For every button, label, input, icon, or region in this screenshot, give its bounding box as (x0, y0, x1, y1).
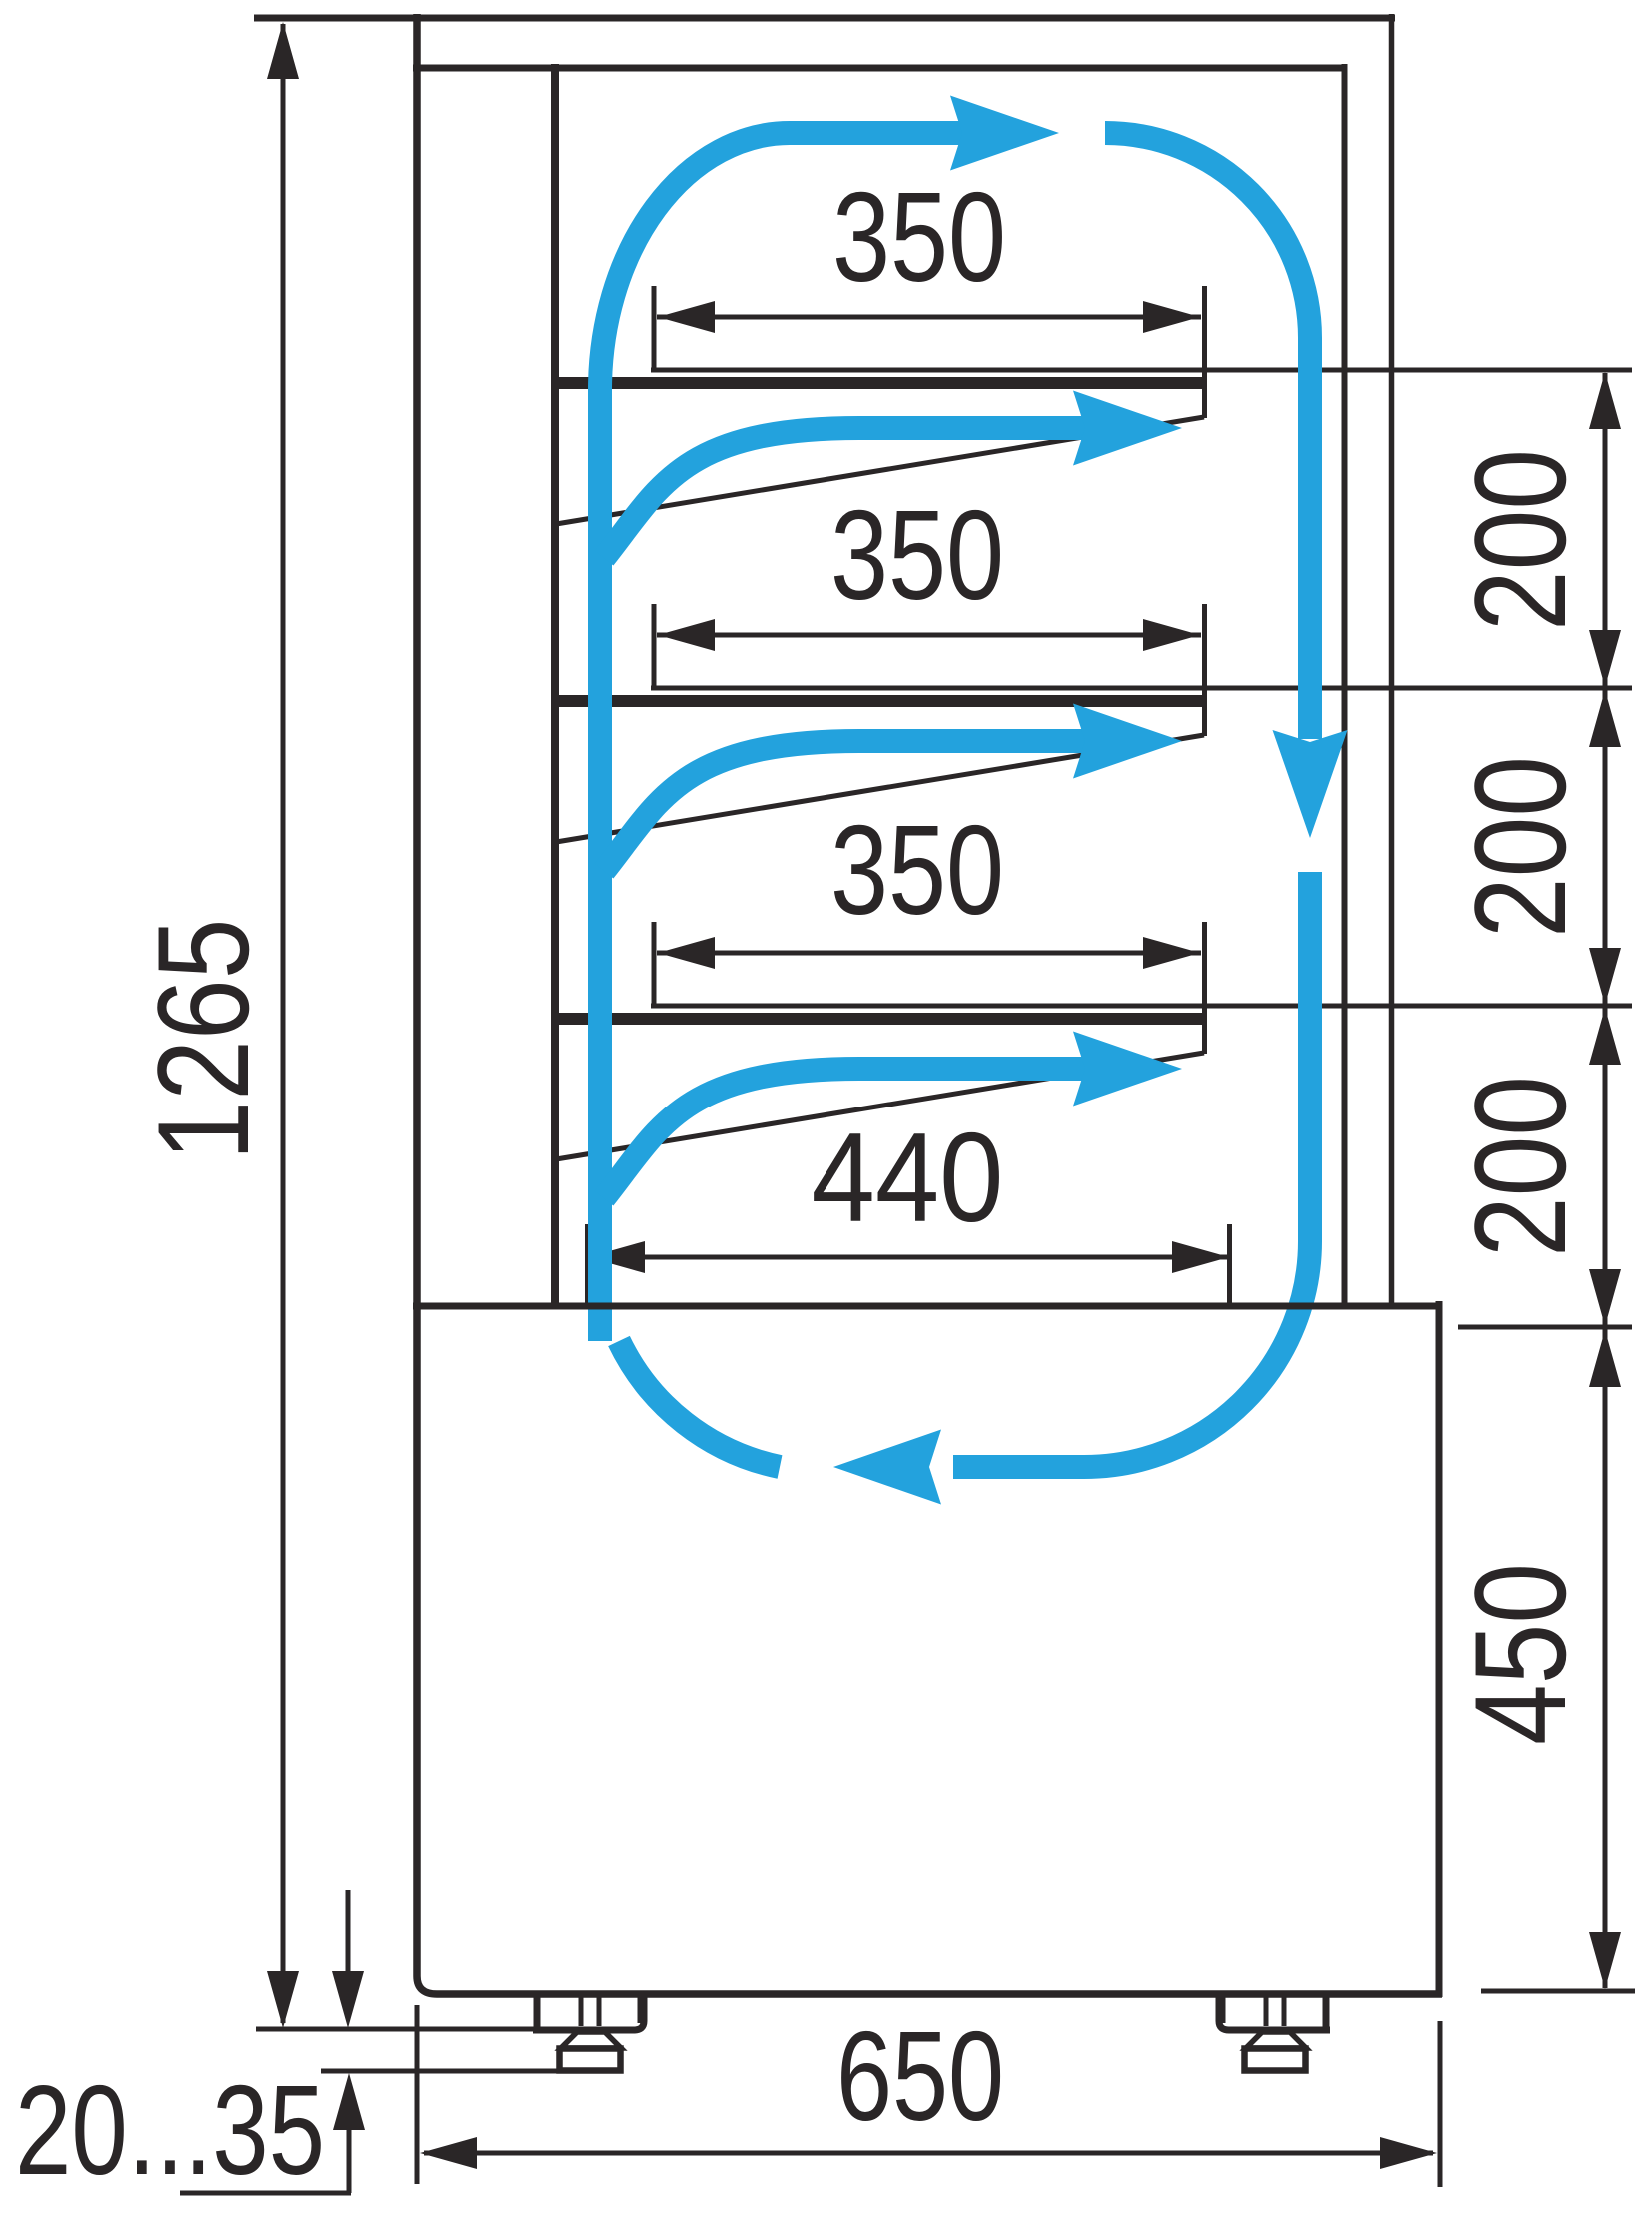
svg-text:450: 450 (1447, 1563, 1593, 1745)
svg-text:200: 200 (1447, 756, 1593, 938)
svg-text:1265: 1265 (130, 919, 276, 1161)
svg-text:350: 350 (832, 166, 1006, 308)
svg-text:350: 350 (830, 799, 1004, 941)
svg-text:200: 200 (1447, 449, 1593, 631)
svg-text:650: 650 (836, 2005, 1004, 2147)
svg-text:200: 200 (1447, 1076, 1593, 1257)
svg-text:440: 440 (812, 1107, 1004, 1248)
svg-text:20...35: 20...35 (15, 2059, 325, 2201)
svg-text:350: 350 (830, 484, 1004, 626)
